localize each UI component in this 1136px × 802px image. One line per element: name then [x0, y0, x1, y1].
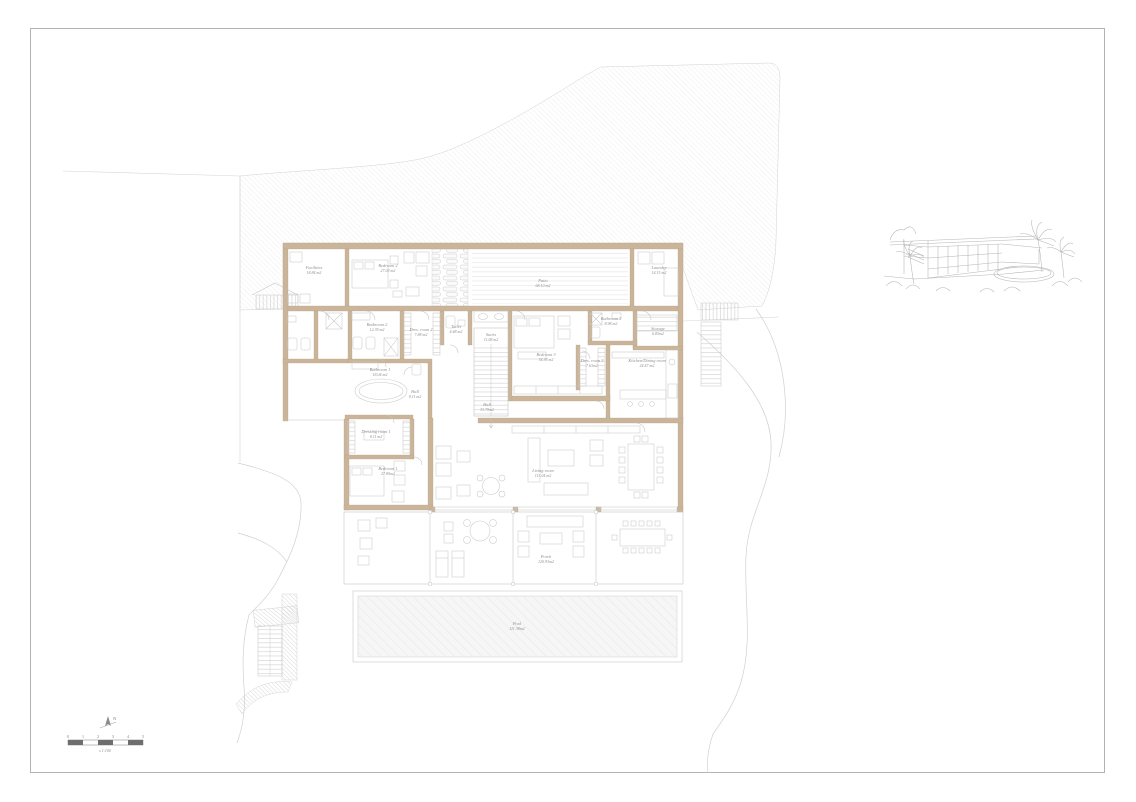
exterior-stairs-bottom-left	[236, 594, 299, 714]
room-label-pool-area: 111.38m2	[509, 626, 524, 631]
scale-tick-5: 5	[142, 734, 144, 739]
villa-sketch	[884, 220, 1082, 292]
room-label-dresroom2-area: 7.88 m2	[415, 332, 428, 337]
room-label-patio-area: 68.10 m2	[536, 283, 551, 288]
room-label-toilet-area: 4.48 m2	[450, 329, 463, 334]
porch-furniture	[358, 516, 672, 577]
room-label-facilities-area: 18.84 m2	[307, 270, 322, 275]
scale-tick-2: 2	[97, 734, 99, 739]
north-arrow-icon: N	[100, 716, 117, 728]
thin-lines	[283, 418, 678, 510]
scale-tick-4: 4	[127, 734, 129, 739]
room-label-stairs-area: 11.08 m2	[484, 337, 499, 342]
room-label-dressing1-area: 8.11 m2	[370, 434, 383, 439]
scale-caption: s 1:100	[99, 749, 111, 753]
scale-tick-3: 3	[112, 734, 114, 739]
room-label-laundry-area: 14.15 m2	[652, 270, 667, 275]
room-label-bedroom2-area: 27.03 m2	[381, 268, 396, 273]
room-label-bathroom2-area: 12.39 m2	[370, 327, 385, 332]
patio-deck	[472, 252, 628, 304]
drawing-sheet: N 0 1 2 3 4 5 s 1:100 Facilities 18.84 m…	[0, 0, 1136, 802]
room-label-porch-area: 120.93m2	[538, 559, 554, 564]
room-labels: Facilities 18.84 m2 Bedroom 2 27.03 m2 P…	[305, 263, 667, 631]
room-label-storage-area: 6.85m2	[652, 331, 664, 336]
room-label-living-area: 113.04 m2	[535, 473, 552, 478]
stone-paving	[432, 249, 468, 306]
terrain-hatch	[63, 63, 780, 462]
scale-tick-0: 0	[67, 734, 69, 739]
floor-plan-drawing: N 0 1 2 3 4 5 s 1:100 Facilities 18.84 m…	[0, 0, 1136, 802]
room-label-bathroom1-area: 18.04 m2	[373, 372, 388, 377]
north-label: N	[113, 716, 117, 721]
exterior-stairs-right	[701, 303, 738, 386]
scale-bar: 0 1 2 3 4 5 s 1:100	[67, 734, 144, 753]
room-label-kitchen-area: 24.47 m2	[640, 363, 655, 368]
room-label-bedroom1-area: 27.80m2	[381, 471, 395, 476]
room-label-bathroom3-area: 8.98 m2	[605, 321, 618, 326]
room-label-hall-area: 33.79m2	[480, 407, 494, 412]
room-label-hall-small-area: 9.11 m2	[409, 394, 422, 399]
room-label-dresroom3-area: 7.63m2	[586, 363, 598, 368]
scale-tick-1: 1	[82, 734, 84, 739]
room-label-bedroom3-area: 34.38 m2	[539, 357, 554, 362]
